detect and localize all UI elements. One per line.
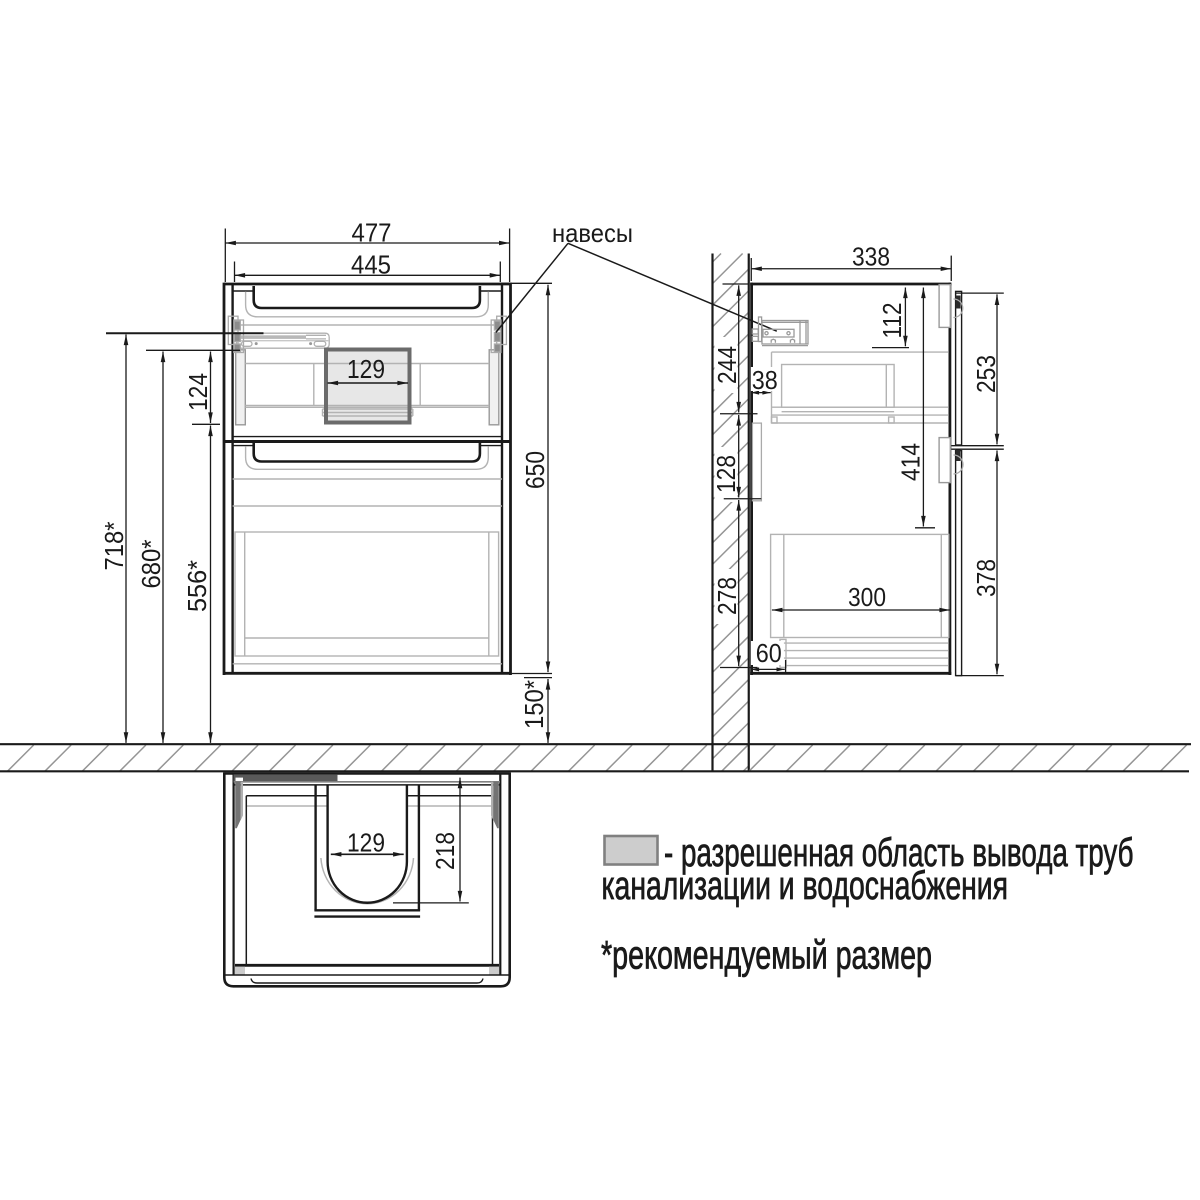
svg-text:129: 129 [347,827,385,857]
svg-text:300: 300 [848,582,886,612]
svg-text:124: 124 [183,373,213,411]
svg-text:навесы: навесы [552,218,633,248]
svg-text:38: 38 [752,365,778,395]
svg-text:128: 128 [711,455,741,493]
svg-text:477: 477 [352,218,392,248]
svg-text:129: 129 [347,354,385,384]
svg-text:218: 218 [430,832,460,870]
svg-text:718*: 718* [99,522,129,571]
svg-text:680*: 680* [136,540,166,589]
svg-text:338: 338 [852,242,890,272]
svg-text:150*: 150* [519,680,549,729]
svg-text:650: 650 [520,451,550,489]
svg-text:60: 60 [756,638,782,668]
svg-text:244: 244 [712,346,742,384]
svg-text:253: 253 [971,355,1001,393]
svg-text:112: 112 [877,303,907,339]
svg-text:414: 414 [896,443,926,481]
svg-text:канализации и водоснабжения: канализации и водоснабжения [602,864,1009,908]
svg-text:278: 278 [712,577,742,615]
svg-text:445: 445 [351,249,391,279]
svg-text:556*: 556* [182,560,212,612]
svg-text:378: 378 [971,559,1001,597]
svg-text:*рекомендуемый размер: *рекомендуемый размер [601,934,932,978]
